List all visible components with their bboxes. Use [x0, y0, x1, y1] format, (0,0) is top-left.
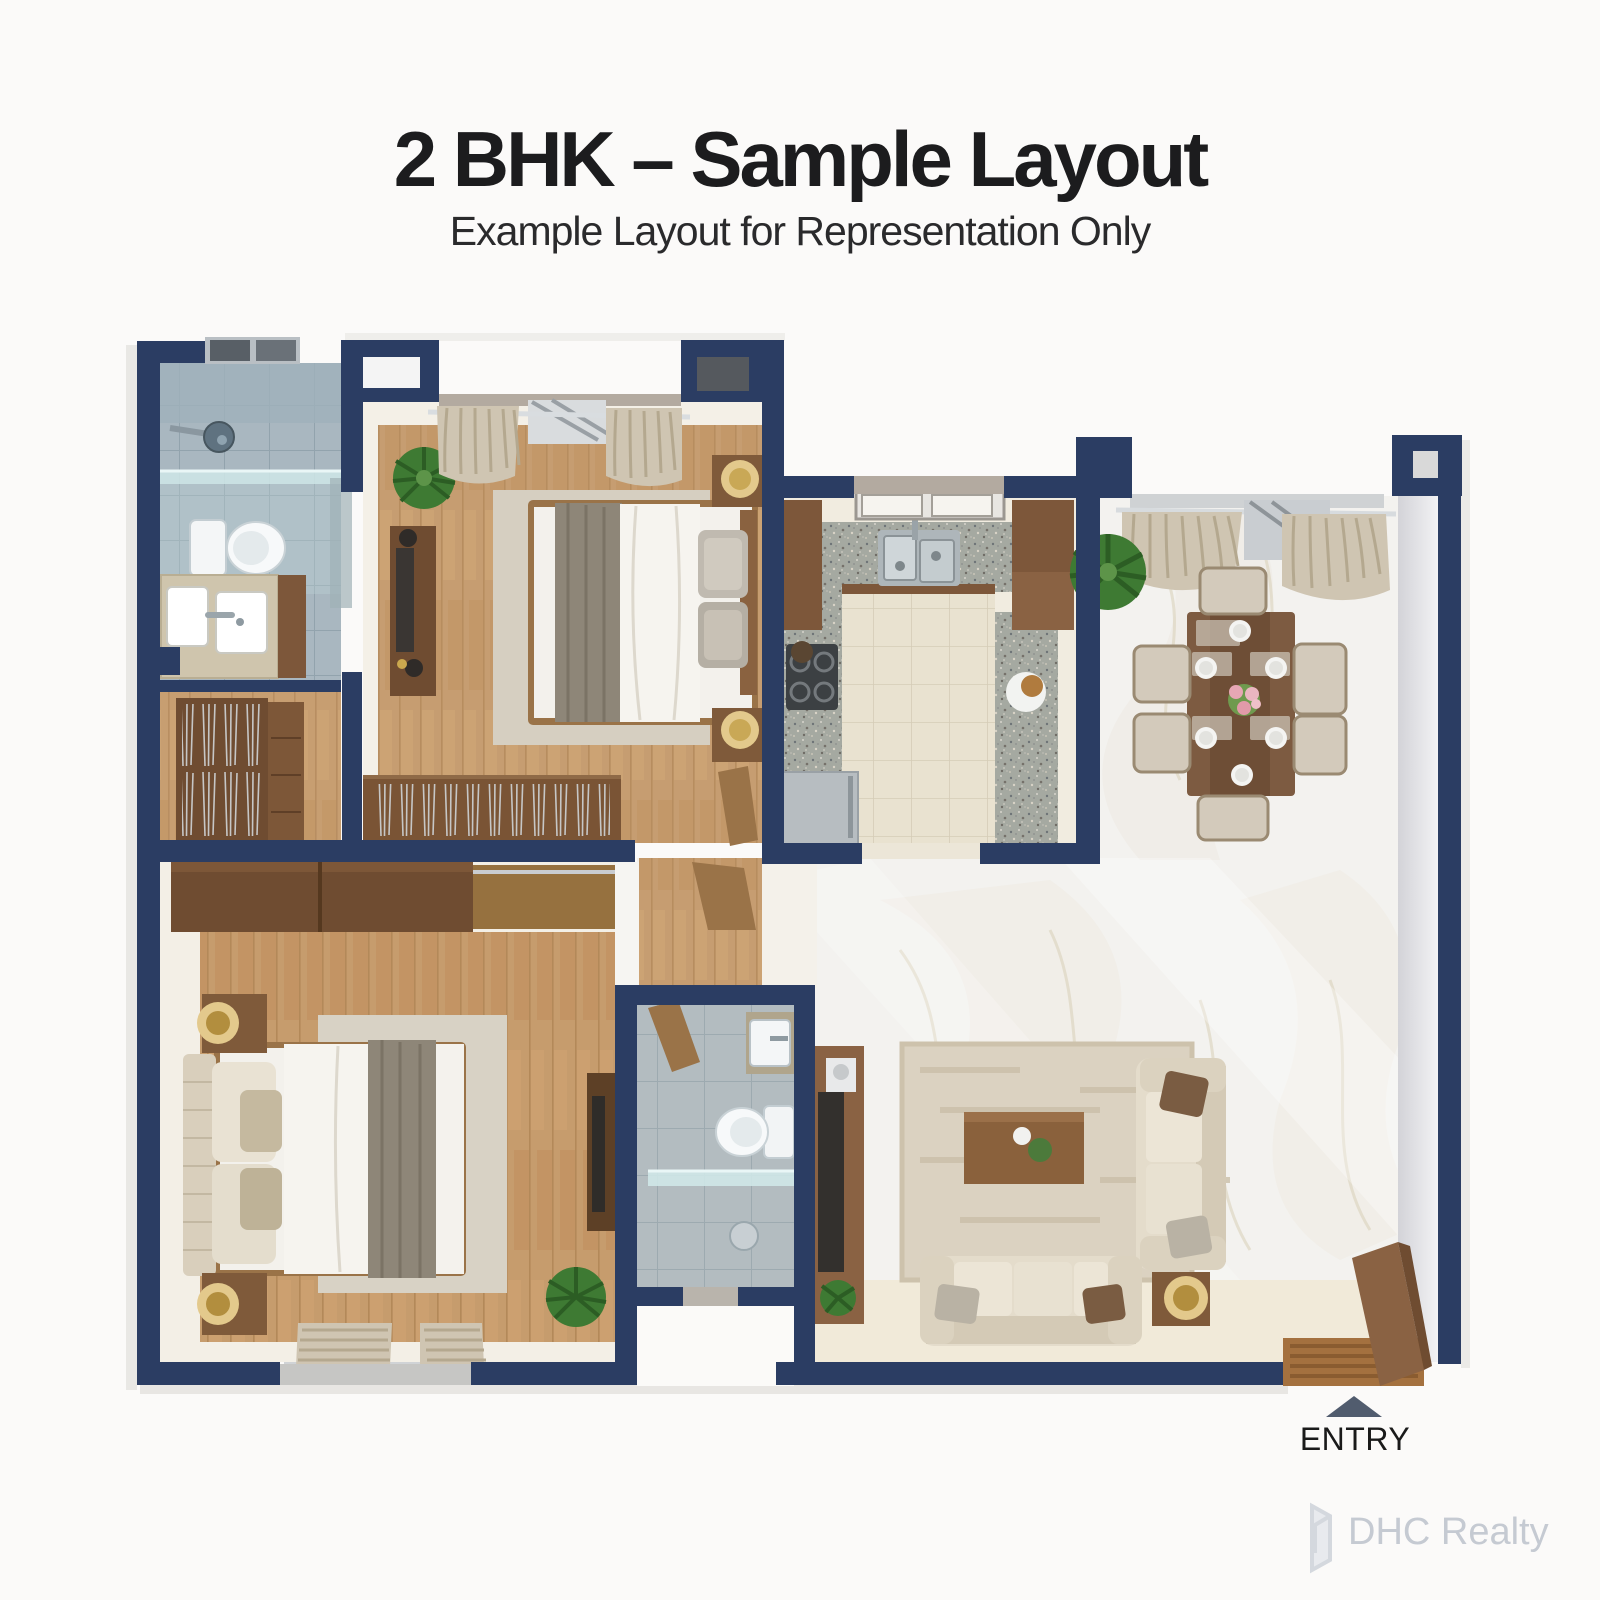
svg-text:ENTRY: ENTRY: [1300, 1421, 1410, 1457]
svg-text:DHC Realty: DHC Realty: [1348, 1511, 1549, 1553]
